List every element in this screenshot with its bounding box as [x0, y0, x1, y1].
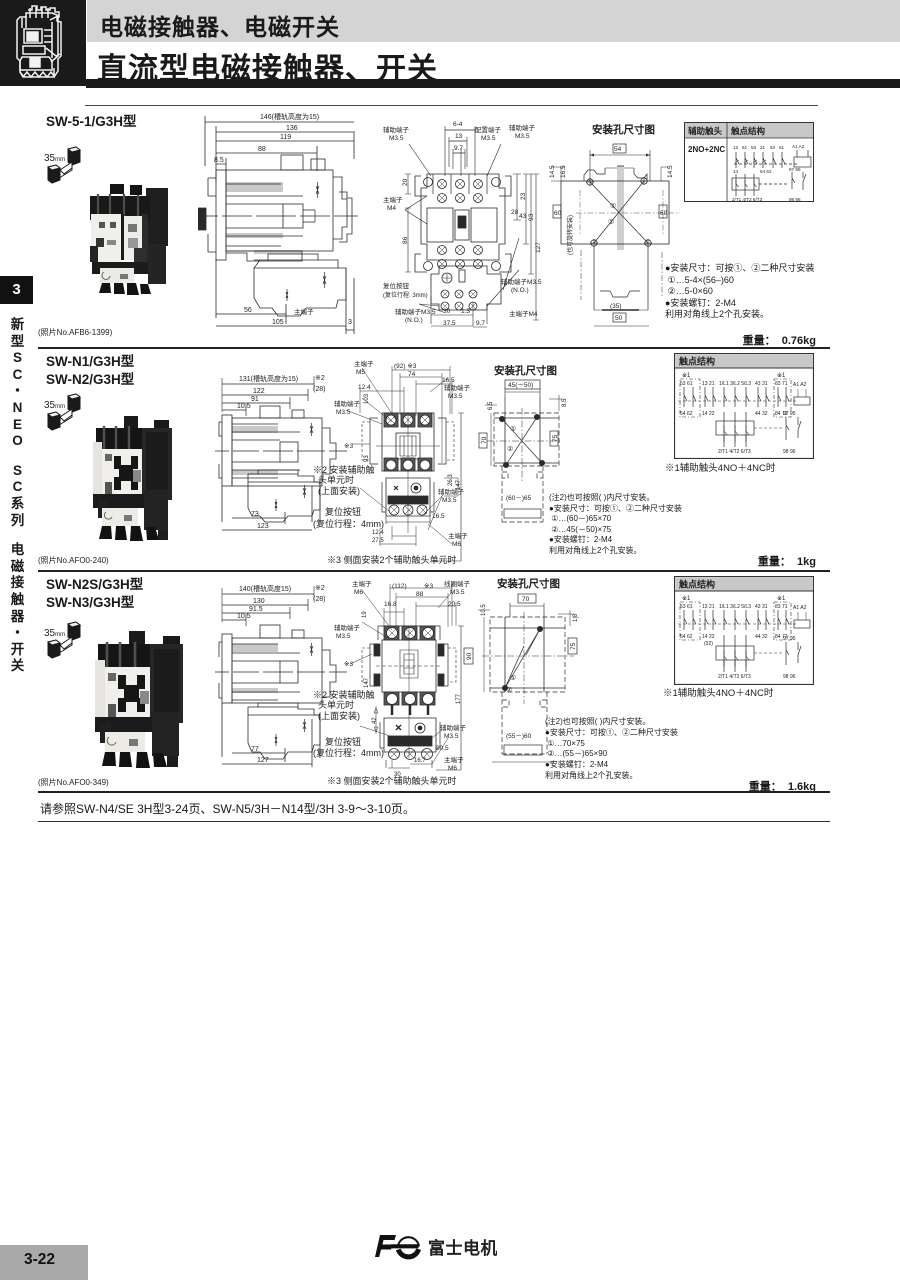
svg-text:60: 60 [660, 210, 668, 217]
svg-text:91.5: 91.5 [249, 606, 263, 613]
svg-text:86: 86 [402, 236, 409, 244]
svg-text:2/T1 4/T2 6/T3: 2/T1 4/T2 6/T3 [718, 674, 751, 680]
svg-text:97 95: 97 95 [789, 167, 801, 172]
svg-text:1/L1 3/L2 5/L3: 1/L1 3/L2 5/L3 [719, 381, 751, 387]
svg-text:2/T1 4/T2 6/T3: 2/T1 4/T2 6/T3 [732, 197, 763, 202]
svg-text:123: 123 [257, 523, 269, 530]
svg-text:53: 53 [770, 145, 776, 150]
svg-text:主端子: 主端子 [352, 579, 372, 588]
svg-text:M3.5: M3.5 [481, 135, 496, 142]
svg-text:8.5: 8.5 [562, 398, 568, 407]
svg-text:M4: M4 [387, 205, 396, 212]
svg-text:(也可旋转安装): (也可旋转安装) [566, 215, 574, 255]
svg-text:辅助端子M3.5: 辅助端子M3.5 [501, 277, 542, 286]
svg-text:(N.O.): (N.O.) [511, 287, 529, 294]
svg-text:①: ① [610, 202, 616, 210]
svg-text:②: ② [506, 686, 512, 694]
svg-text:13: 13 [733, 145, 739, 150]
svg-text:16.8: 16.8 [384, 601, 397, 608]
svg-text:9.7: 9.7 [476, 320, 485, 327]
svg-text:8.5: 8.5 [214, 157, 224, 164]
svg-text:45(－50): 45(－50) [508, 382, 533, 389]
svg-text:※3: ※3 [344, 443, 353, 450]
svg-text:M3.5: M3.5 [336, 409, 351, 416]
svg-text:28: 28 [511, 209, 519, 216]
svg-text:20.5: 20.5 [448, 601, 461, 608]
svg-text:16.7: 16.7 [414, 758, 426, 764]
svg-text:54 62: 54 62 [680, 634, 693, 640]
svg-text:53: 53 [751, 145, 757, 150]
svg-text:(N.O.): (N.O.) [405, 317, 423, 324]
svg-text:54 62: 54 62 [680, 411, 693, 417]
svg-text:※1: ※1 [777, 595, 786, 602]
svg-text:13 21: 13 21 [702, 604, 715, 610]
svg-text:线圈端子: 线圈端子 [444, 579, 471, 588]
svg-text:53 61: 53 61 [680, 604, 693, 610]
svg-text:M6: M6 [354, 589, 363, 596]
svg-text:14: 14 [733, 169, 739, 174]
svg-text:(28): (28) [313, 596, 325, 603]
svg-text:6.5: 6.5 [488, 401, 494, 410]
svg-text:83 71: 83 71 [775, 381, 788, 387]
svg-text:主端子: 主端子 [354, 359, 374, 368]
svg-text:61: 61 [779, 145, 785, 150]
svg-text:61: 61 [742, 145, 748, 150]
svg-text:M3.5: M3.5 [336, 633, 351, 640]
svg-text:M6: M6 [448, 765, 457, 772]
svg-text:97 95: 97 95 [783, 636, 796, 642]
svg-text:16.5: 16.5 [432, 513, 445, 520]
svg-text:A1 A2: A1 A2 [793, 605, 807, 611]
svg-text:※3: ※3 [424, 583, 433, 590]
svg-text:16.5: 16.5 [442, 377, 455, 384]
svg-text:复位按钮: 复位按钮 [383, 281, 410, 290]
svg-text:105: 105 [272, 319, 284, 326]
svg-text:35mm: 35mm [44, 628, 65, 639]
svg-text:M3.5: M3.5 [515, 133, 530, 140]
svg-text:147: 147 [364, 677, 370, 688]
svg-text:56: 56 [244, 307, 252, 314]
svg-text:辅助端子: 辅助端子 [438, 487, 465, 496]
svg-text:119: 119 [280, 134, 291, 141]
svg-text:98 96: 98 96 [789, 197, 801, 202]
svg-text:140(槽轨高度15): 140(槽轨高度15) [239, 584, 291, 593]
svg-text:※1: ※1 [682, 595, 691, 602]
svg-text:10.5: 10.5 [237, 403, 251, 410]
svg-text:13: 13 [455, 133, 463, 140]
svg-text:43: 43 [519, 213, 527, 220]
svg-text:43 31: 43 31 [755, 604, 768, 610]
svg-text:27.5: 27.5 [372, 538, 384, 544]
svg-text:主端子: 主端子 [294, 307, 314, 316]
svg-text:93: 93 [528, 213, 535, 221]
svg-text:75: 75 [570, 642, 577, 650]
svg-text:触点结构: 触点结构 [678, 579, 715, 590]
svg-text:16.5: 16.5 [560, 165, 567, 178]
svg-text:M3.5: M3.5 [442, 497, 457, 504]
svg-text:54: 54 [614, 146, 622, 153]
svg-text:※3: ※3 [344, 661, 353, 668]
svg-text:※2: ※2 [315, 375, 325, 382]
svg-text:19: 19 [362, 611, 368, 618]
svg-text:14.5: 14.5 [549, 165, 556, 178]
svg-text:(112): (112) [392, 583, 407, 590]
svg-text:②: ② [507, 445, 513, 453]
svg-text:※1: ※1 [682, 372, 691, 379]
svg-text:88: 88 [258, 146, 266, 153]
svg-text:50: 50 [615, 315, 623, 322]
svg-text:23: 23 [520, 192, 527, 200]
svg-text:10.5: 10.5 [237, 613, 251, 620]
svg-text:146(槽轨高度为15): 146(槽轨高度为15) [260, 112, 319, 121]
svg-text:辅助端子: 辅助端子 [383, 125, 410, 134]
svg-text:44 32: 44 32 [755, 411, 768, 417]
svg-text:12.4: 12.4 [358, 384, 371, 391]
svg-text:90: 90 [466, 652, 473, 660]
svg-text:(35): (35) [610, 303, 622, 310]
svg-text:20.5: 20.5 [436, 745, 449, 752]
svg-text:M6: M6 [452, 541, 461, 548]
svg-text:136: 136 [286, 125, 298, 132]
svg-text:20: 20 [402, 178, 409, 186]
svg-text:2NO+2NC: 2NO+2NC [688, 145, 725, 154]
svg-text:37.5: 37.5 [443, 320, 456, 327]
svg-text:42: 42 [372, 717, 378, 724]
svg-text:88: 88 [416, 591, 424, 598]
svg-text:60: 60 [554, 210, 562, 217]
svg-text:(92) ※3: (92) ※3 [394, 363, 417, 370]
svg-text:12.4: 12.4 [372, 530, 384, 536]
svg-text:辅助端子: 辅助端子 [509, 123, 536, 132]
svg-text:主端子M4: 主端子M4 [509, 309, 538, 318]
svg-text:73: 73 [251, 511, 259, 518]
svg-text:26.3: 26.3 [448, 474, 454, 486]
svg-text:21: 21 [760, 145, 766, 150]
svg-text:97 95: 97 95 [783, 411, 796, 417]
svg-text:M3.5: M3.5 [389, 135, 404, 142]
svg-text:98 96: 98 96 [783, 674, 796, 680]
svg-text:(55－)60: (55－)60 [506, 733, 532, 740]
svg-text:53 61: 53 61 [680, 381, 693, 387]
svg-text:10.5: 10.5 [481, 604, 487, 616]
svg-text:74: 74 [408, 371, 416, 378]
svg-text:35mm: 35mm [44, 153, 65, 164]
svg-text:主端子: 主端子 [444, 755, 464, 764]
svg-text:122: 122 [253, 388, 265, 395]
svg-text:44 32: 44 32 [755, 634, 768, 640]
svg-text:83 71: 83 71 [775, 604, 788, 610]
svg-text:1.3: 1.3 [461, 308, 470, 315]
svg-text:辅助端子: 辅助端子 [444, 383, 471, 392]
svg-text:辅助触头: 辅助触头 [688, 126, 723, 136]
svg-text:①: ① [510, 674, 516, 682]
svg-text:辅助端子M3.5: 辅助端子M3.5 [395, 307, 436, 316]
svg-text:A1 A2: A1 A2 [792, 144, 805, 149]
svg-text:54 62: 54 62 [760, 169, 772, 174]
svg-text:9.7: 9.7 [454, 145, 463, 152]
svg-text:辅助端子: 辅助端子 [334, 623, 361, 632]
svg-text:1/L1 3/L2 5/L3: 1/L1 3/L2 5/L3 [719, 604, 751, 610]
svg-text:(60－)65: (60－)65 [506, 495, 532, 502]
svg-text:98 96: 98 96 [783, 449, 796, 455]
svg-text:①: ① [510, 425, 516, 433]
svg-text:1|8: 1|8 [573, 613, 579, 622]
svg-text:M3.5: M3.5 [448, 393, 463, 400]
svg-text:70: 70 [481, 436, 488, 444]
svg-text:2/T1 4/T2 6/T3: 2/T1 4/T2 6/T3 [718, 449, 751, 455]
svg-text:(32): (32) [704, 641, 713, 647]
svg-text:触点结构: 触点结构 [678, 356, 715, 367]
svg-text:30: 30 [443, 308, 451, 315]
svg-text:70: 70 [522, 596, 530, 603]
svg-text:77: 77 [251, 746, 259, 753]
svg-text:触点结构: 触点结构 [730, 126, 766, 136]
svg-text:(复位行程: 3mm): (复位行程: 3mm) [383, 291, 428, 299]
svg-text:91: 91 [251, 396, 259, 403]
svg-text:93: 93 [364, 455, 370, 462]
svg-text:主端子: 主端子 [448, 531, 468, 540]
svg-text:131(槽轨高度为15): 131(槽轨高度为15) [239, 374, 298, 383]
svg-text:75: 75 [552, 434, 559, 442]
svg-text:配置端子: 配置端子 [475, 125, 502, 134]
svg-text:35mm: 35mm [44, 400, 65, 411]
svg-text:127: 127 [535, 242, 542, 253]
svg-text:富士电机: 富士电机 [428, 1238, 497, 1258]
svg-text:A1 A2: A1 A2 [793, 382, 807, 388]
svg-text:M3.5: M3.5 [444, 733, 459, 740]
svg-text:43 31: 43 31 [755, 381, 768, 387]
svg-text:辅助端子: 辅助端子 [334, 399, 361, 408]
svg-text:130: 130 [253, 598, 265, 605]
svg-text:13 21: 13 21 [702, 381, 715, 387]
svg-text:※2: ※2 [315, 585, 325, 592]
svg-text:※1: ※1 [777, 372, 786, 379]
svg-text:103: 103 [364, 393, 370, 404]
svg-text:6-4: 6-4 [453, 121, 463, 128]
svg-text:14.5: 14.5 [667, 165, 674, 178]
svg-text:主端子: 主端子 [383, 195, 403, 204]
svg-text:②: ② [608, 218, 614, 226]
svg-text:M5: M5 [356, 369, 365, 376]
svg-text:127: 127 [257, 757, 269, 764]
svg-text:3: 3 [348, 319, 352, 326]
svg-text:14 22: 14 22 [702, 411, 715, 417]
svg-text:14 22: 14 22 [702, 634, 715, 640]
svg-text:(28): (28) [313, 386, 325, 393]
